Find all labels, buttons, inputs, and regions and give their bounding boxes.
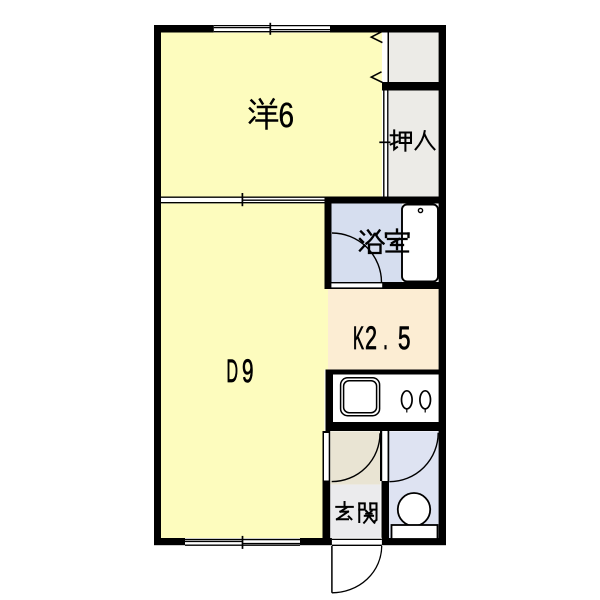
svg-text:6: 6	[279, 96, 295, 135]
